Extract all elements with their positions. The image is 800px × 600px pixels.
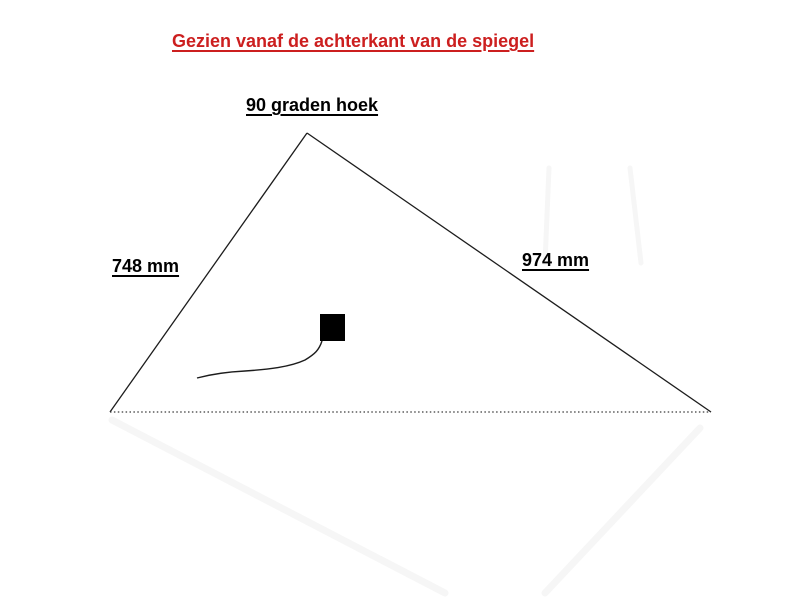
erased-artifact-vertical-1 <box>545 168 549 263</box>
diagram-title: Gezien vanaf de achterkant van de spiege… <box>172 31 534 52</box>
left-side-measurement: 748 mm <box>112 256 179 277</box>
erased-artifacts <box>112 168 700 593</box>
erased-artifact-lower-left <box>112 420 445 593</box>
angle-label: 90 graden hoek <box>246 95 378 116</box>
erased-artifact-vertical-2 <box>630 168 641 263</box>
pointer-curve-line <box>197 341 322 378</box>
mirror-triangle-drawing <box>0 0 800 600</box>
right-side-measurement: 974 mm <box>522 250 589 271</box>
erased-artifact-lower-right <box>545 428 700 593</box>
diagram-canvas: Gezien vanaf de achterkant van de spiege… <box>0 0 800 600</box>
triangle-right-side-line <box>307 133 711 412</box>
marker-square <box>320 314 345 341</box>
